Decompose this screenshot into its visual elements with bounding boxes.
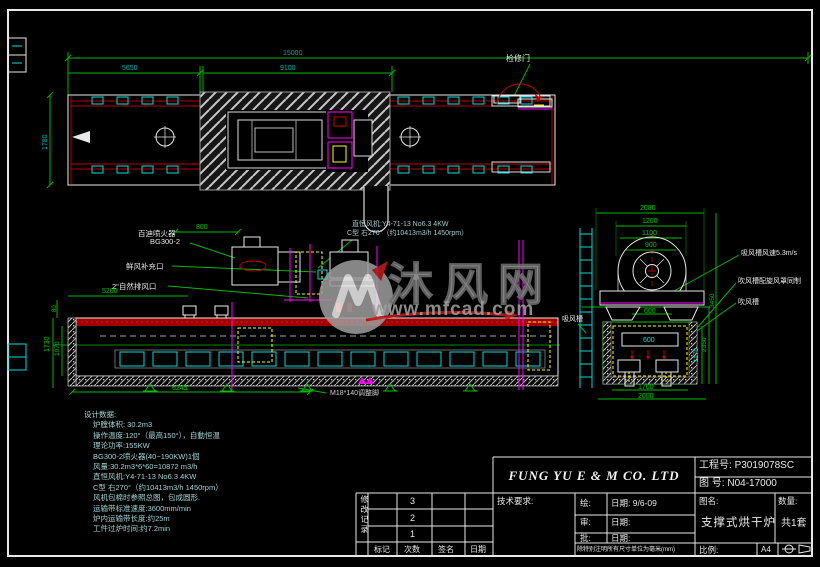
revision-row-2: 2 [410, 514, 415, 523]
design-note: 直恒风机:Y4-71-13 No6.3 4KW [84, 472, 223, 482]
dim-1170: 1170 [694, 348, 701, 362]
design-note: 设计数据: [84, 410, 223, 420]
dim-6245: 6245 [172, 385, 188, 392]
design-note: BG300-2喷火器(40~190KW)1個 [84, 452, 223, 462]
drawing-name-label: 图名: [699, 497, 718, 506]
label-fan-spec-1: 直恒风机:Y4-71-13 No6.3 4KW [352, 221, 448, 228]
revision-header-date: 日期 [470, 546, 486, 554]
dim-1780: 1780 [42, 134, 49, 150]
dim-2350: 2350 [702, 338, 709, 352]
dim-1700: 1700 [638, 384, 654, 391]
dim-1070: 1070 [55, 342, 62, 356]
projection-symbol-icon [782, 545, 810, 553]
drawing-number-value: N04-17000 [727, 478, 776, 489]
dim-600-duct: 600 [643, 337, 655, 344]
quantity-value: 共1套 [781, 519, 807, 529]
dim-3450: 3450 [710, 294, 717, 308]
suction-duct-ladder [580, 228, 592, 388]
tech-requirements-label: 技术要求: [497, 497, 533, 506]
drawing-number-label: 图 号: [699, 478, 725, 489]
checked-date-label: 日期: [611, 518, 630, 527]
dim-5650: 5650 [122, 65, 138, 72]
roof-vents [183, 306, 228, 318]
company-name: FUNG YU E & M CO. LTD [493, 457, 695, 493]
approved-date-label: 日期: [611, 534, 630, 543]
revision-table-vertical-label: 修改记录 [355, 495, 368, 555]
dim-600-base: 600 [644, 308, 656, 315]
design-note: 风量:30.2m3*6*60=10872 m3/h [84, 462, 223, 472]
drawn-date-value: 9/6-09 [633, 498, 657, 508]
elevation-dimensions [53, 229, 352, 395]
label-adjust-foot: M18*140调整脚 [330, 390, 379, 397]
project-number: 工程号: P3019078SC [699, 461, 794, 471]
plan-machine [226, 110, 372, 172]
dim-900: 900 [645, 242, 657, 249]
dim-9100: 9100 [280, 65, 296, 72]
design-note: 工件过炉时间:约7.2min [84, 524, 223, 534]
revision-header-times: 次数 [404, 546, 420, 554]
dim-1730: 1730 [44, 336, 51, 352]
dim-800: 800 [196, 224, 208, 231]
design-note: 操作温度:120°（最高150°），自動恒温 [84, 431, 223, 441]
design-note: C型 右270°（约10413m3/h 1450rpm） [84, 483, 223, 493]
design-note: 炉内运输带长度:约25m [84, 514, 223, 524]
label-fan-spec-2: C型 右270°（约10413m3/h 1450rpm） [347, 230, 468, 237]
furnace-cross-section [603, 322, 697, 386]
project-number-label: 工程号: [699, 460, 732, 471]
project-number-value: P3019078SC [735, 460, 795, 471]
label-blow-duct: 吹风槽 [738, 299, 759, 306]
label-inspection-door: 检修门 [506, 55, 530, 63]
design-data-notes: 设计数据: 炉膛体积: 30.2m3 操作温度:120°（最高150°），自動恒… [84, 410, 223, 535]
drawn-date-label: 日期: [611, 498, 630, 508]
revision-header-mark: 标记 [374, 546, 390, 554]
approved-by-label: 批: [580, 534, 591, 543]
scale-label: 比例: [699, 546, 718, 555]
drawing-number: 图 号: N04-17000 [699, 479, 777, 489]
dim-2000: 2000 [638, 393, 654, 400]
dim-1200: 1200 [642, 218, 658, 225]
label-natural-vent: 2"自然排风口 [112, 283, 156, 291]
revision-header-signature: 签名 [438, 546, 454, 554]
label-fresh-air-inlet: 鲜风补充口 [126, 263, 164, 271]
design-note: 理论功率:155KW [84, 441, 223, 451]
plan-view [47, 52, 811, 232]
watermark-site-url: www.mfcad.com [372, 299, 534, 321]
drawn-by-label: 绘: [580, 499, 591, 508]
quantity-label: 数量: [778, 497, 797, 506]
fan-base [600, 291, 704, 320]
design-note: 炉膛体积: 30.2m3 [84, 420, 223, 430]
checked-by-label: 审: [580, 518, 591, 527]
dim-1100: 1100 [642, 230, 657, 237]
dim-overall-15000: 15000 [283, 50, 302, 57]
label-burner-model: BG300-2 [150, 238, 180, 246]
cad-drawing-sheet: 设计数据: 炉膛体积: 30.2m3 操作温度:120°（最高150°），自動恒… [0, 0, 820, 567]
drawing-name-value: 支撑式烘干炉 [701, 518, 776, 530]
design-note: 运输带标准速度:3600mm/min [84, 504, 223, 514]
design-note: 风机包棉时参照总图，包成圆形. [84, 493, 223, 503]
label-suction-duct: 吸风槽 [562, 316, 583, 323]
label-blow-duct-cover: 吹风槽配旋风罩同制 [738, 278, 801, 285]
units-note: 除特别注明所有尺寸单位为毫米(mm) [577, 547, 675, 553]
revision-row-3: 3 [410, 497, 415, 506]
dim-2080: 2080 [640, 205, 656, 212]
drawn-date: 日期: 9/6-09 [611, 499, 657, 508]
dim-80: 80 [52, 305, 58, 312]
paper-size: A4 [761, 546, 771, 554]
label-suction-speed: 吸风槽风速5.3m/s [741, 250, 797, 257]
revision-row-1: 1 [410, 530, 415, 539]
